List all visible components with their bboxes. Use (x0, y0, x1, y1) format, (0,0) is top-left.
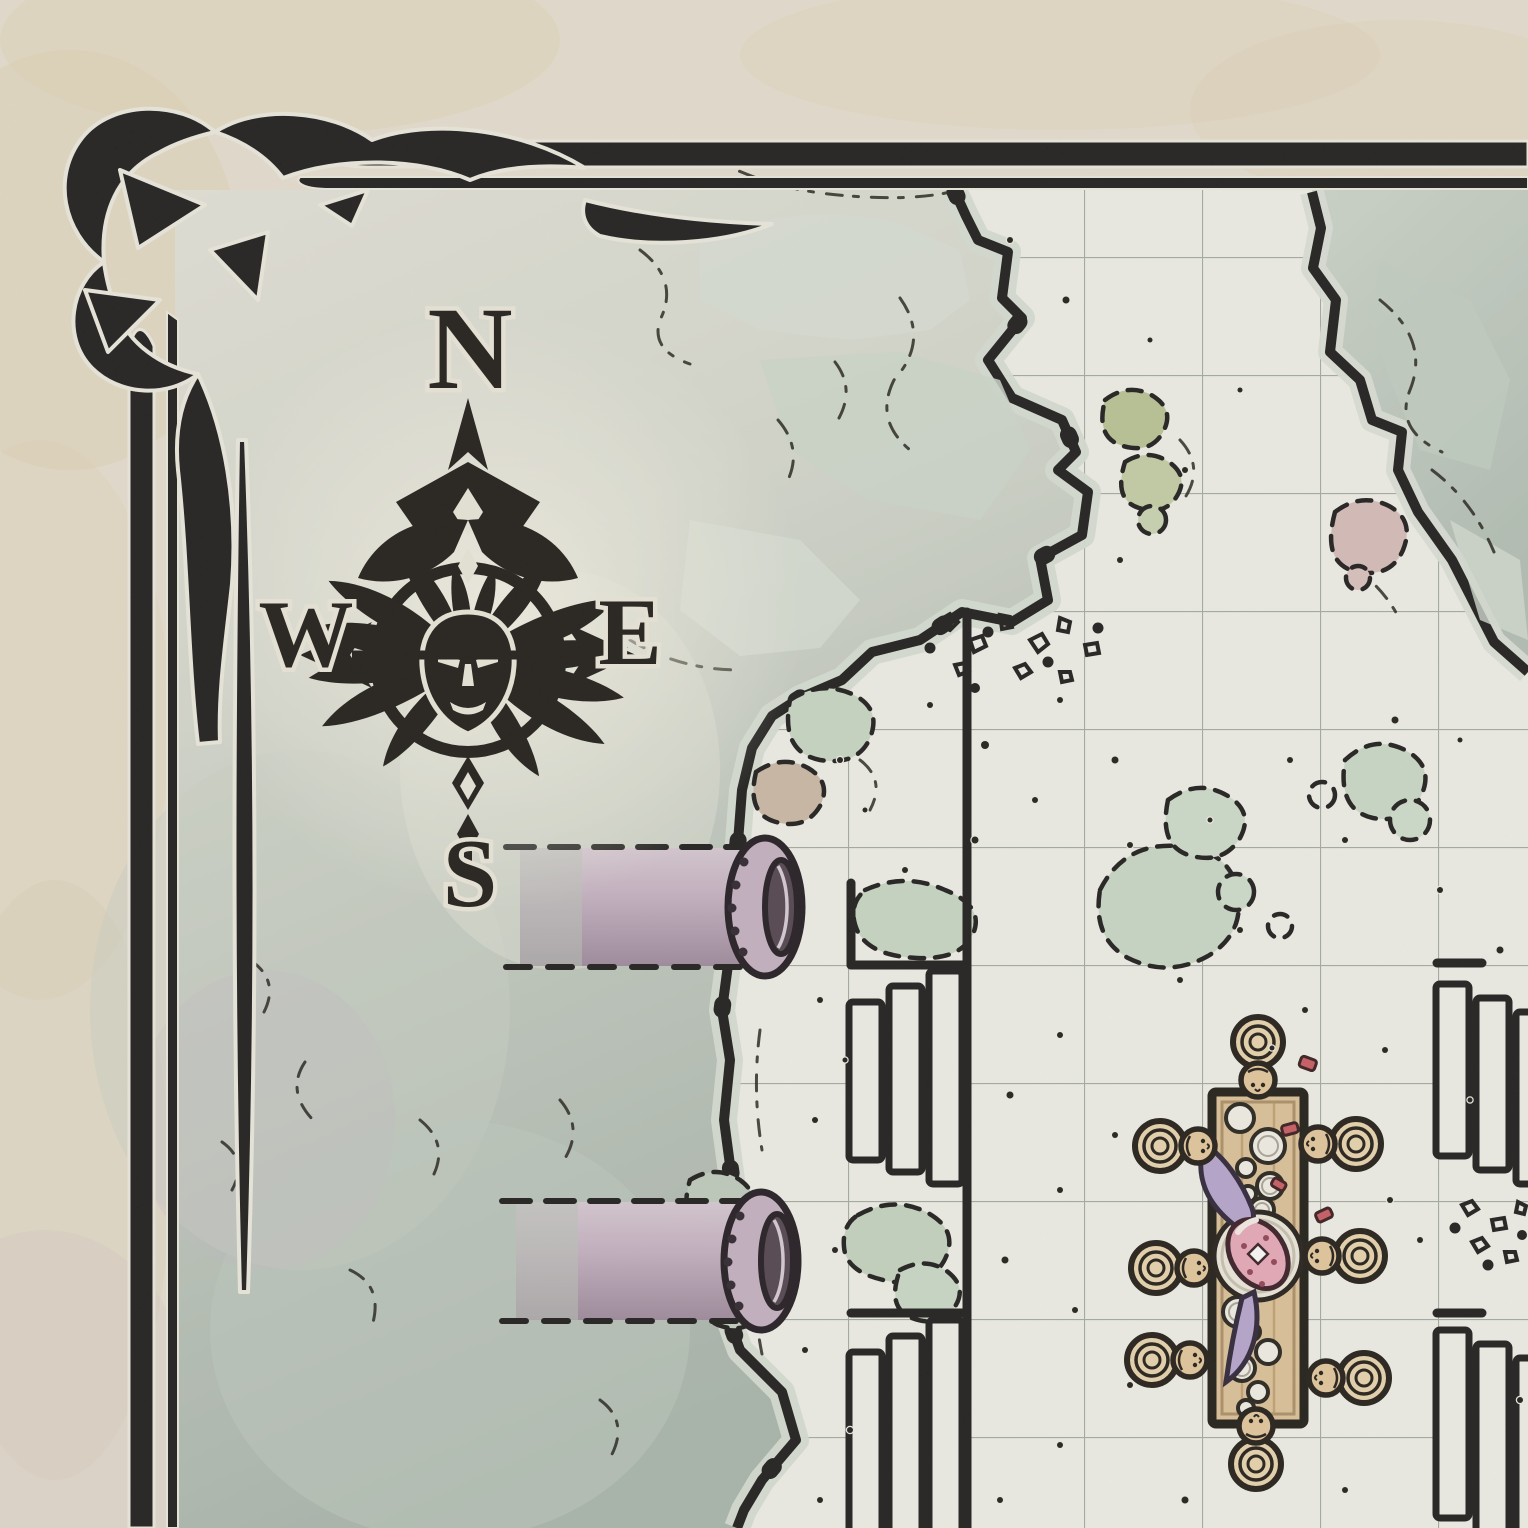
paper-grain-overlay (0, 0, 1528, 1528)
battle-map-screenshot: N W E S (0, 0, 1528, 1528)
battle-map-canvas: N W E S (0, 0, 1528, 1528)
